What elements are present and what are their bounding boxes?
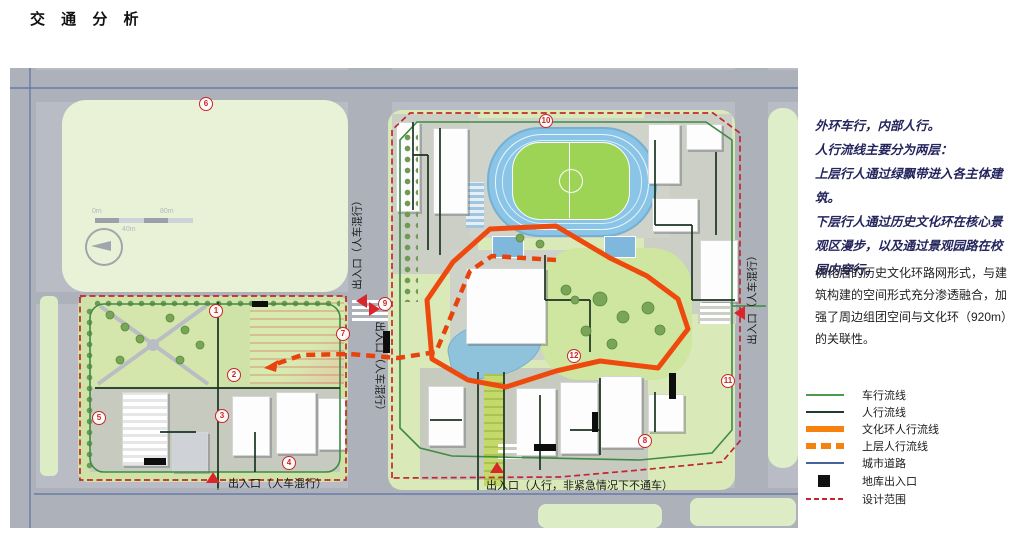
entrance-label-mid-lower: 出入口（人车混行） <box>373 314 388 424</box>
annotation-body-text: 优化后的历史文化环路网形式，与建筑构建的空间形式充分渗透融合，加强了周边组团空间… <box>815 262 1013 350</box>
design-scope-lines <box>80 113 740 480</box>
legend-row-pedestrian: 人行流线 <box>806 403 1016 420</box>
page-title: 交 通 分 析 <box>30 8 145 29</box>
annotation-line: 人行流线主要分为两层： <box>815 138 1005 162</box>
legend: 车行流线 人行流线 文化环人行流线 上层人行流线 城市道路 地库出入口 设计范围 <box>806 386 1016 507</box>
design-scope-swatch <box>806 498 846 500</box>
legend-row-upper-pedestrian: 上层人行流线 <box>806 437 1016 454</box>
annotation-line: 外环车行，内部人行。 <box>815 114 1005 138</box>
annotation-line: 上层行人通过绿飘带进入各主体建筑。 <box>815 162 1005 210</box>
garage-entrance-swatch <box>806 475 846 487</box>
entrance-label-campus-south: 出入口（人行，非紧急情况下不通车） <box>486 477 673 493</box>
upper-level-pedestrian-dashed <box>264 256 556 372</box>
garage-entrance-marks <box>144 301 676 465</box>
city-road-swatch <box>806 462 846 464</box>
legend-row-design-scope: 设计范围 <box>806 490 1016 507</box>
entrance-label-east: 出入口（人车混行） <box>745 243 760 353</box>
entrance-arrow <box>490 462 504 473</box>
pedestrian-line-swatch <box>806 411 846 413</box>
pedestrian-flow-lines <box>95 122 735 490</box>
legend-row-cultural-ring: 文化环人行流线 <box>806 420 1016 437</box>
entrance-label-mid-upper: 出入口（人车混行） <box>350 188 365 298</box>
flow-lines-overlay <box>10 68 798 528</box>
annotation-bold-text: 外环车行，内部人行。 人行流线主要分为两层： 上层行人通过绿飘带进入各主体建筑。… <box>815 114 1005 282</box>
entrance-arrow <box>206 472 220 483</box>
site-plan-map: 0m 40m 80m <box>10 68 798 528</box>
vehicle-line-swatch <box>806 394 846 396</box>
entrance-arrow <box>734 306 745 320</box>
cultural-ring-swatch <box>806 426 846 432</box>
legend-row-garage: 地库出入口 <box>806 471 1016 490</box>
legend-row-vehicle: 车行流线 <box>806 386 1016 403</box>
upper-pedestrian-swatch <box>806 443 846 449</box>
legend-row-city-road: 城市道路 <box>806 454 1016 471</box>
sw-park-paths <box>98 306 208 384</box>
entrance-label-sw-south: 出入口（人车混行） <box>228 475 327 491</box>
